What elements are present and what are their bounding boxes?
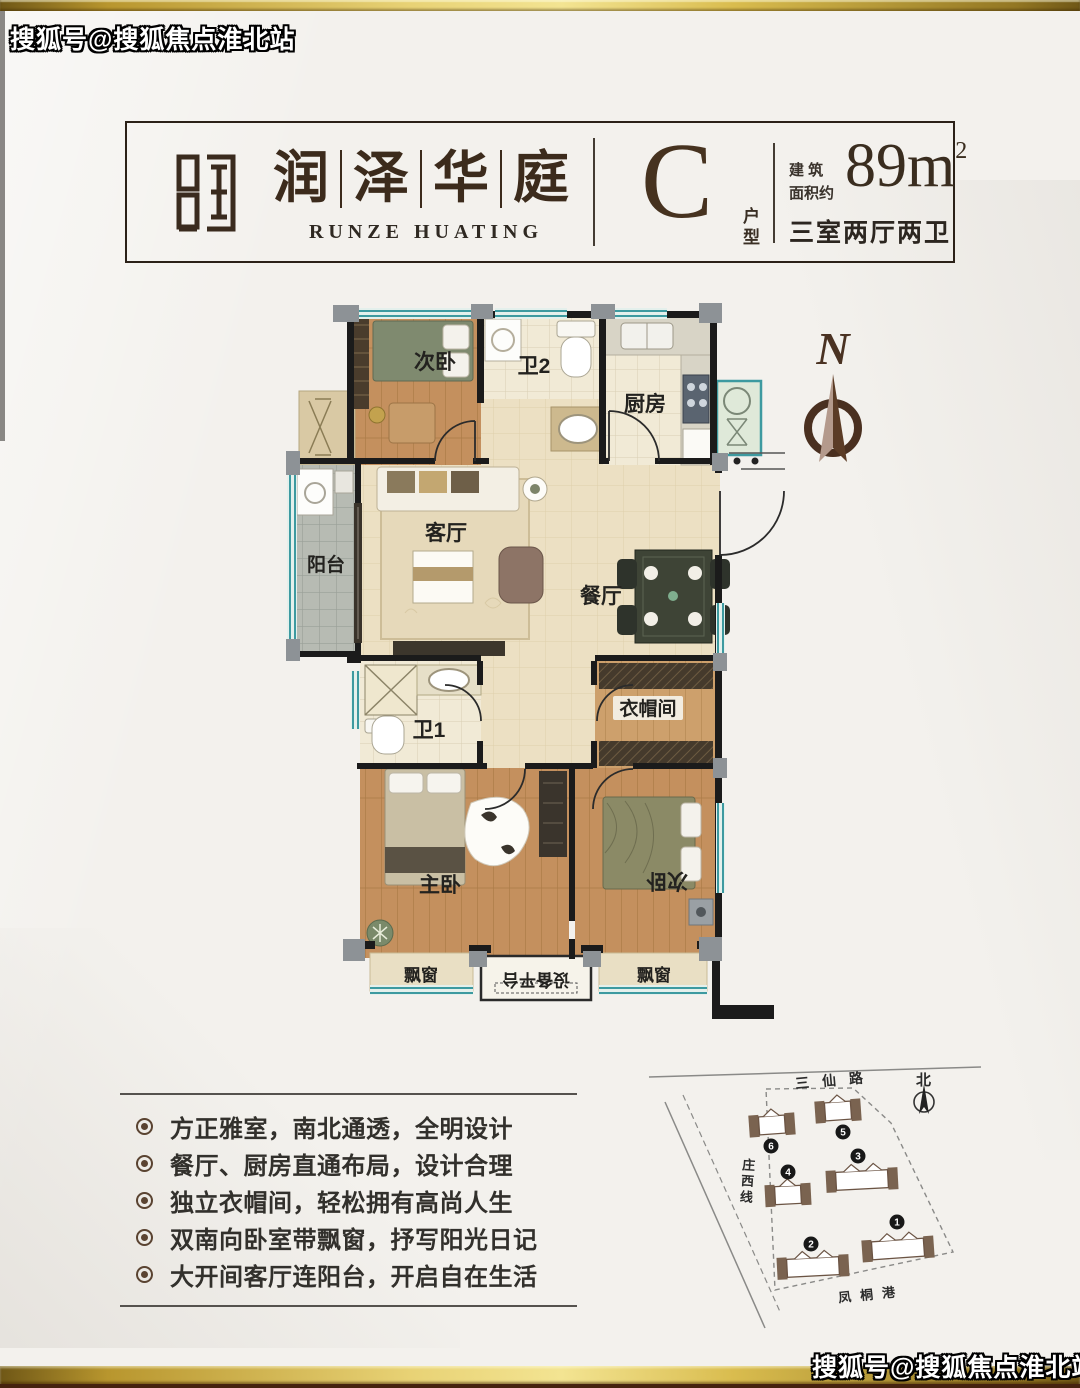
building-3-shape — [825, 1162, 898, 1193]
road-label-left: 庄西线 — [735, 1157, 757, 1206]
unit-suffix-char: 户 — [743, 207, 760, 227]
left-edge-shadow — [0, 11, 5, 441]
bath1-basin — [429, 669, 469, 691]
armchair — [499, 547, 543, 603]
fridge — [683, 429, 711, 463]
feature-text: 大开间客厅连阳台，开启自在生活 — [170, 1257, 538, 1292]
header-box: 润 泽 华 庭 RUNZE HUATING C 户 型 建 筑 面积约 89m2… — [125, 121, 955, 263]
label-bay-left: 飘窗 — [404, 965, 438, 985]
pillow — [681, 803, 701, 837]
unit-suffix: 户 型 — [743, 207, 760, 247]
compass: N — [793, 326, 873, 482]
label-balcony: 阳台 — [307, 553, 345, 576]
toilet-tank — [557, 321, 595, 337]
brand-title-en: RUNZE HUATING — [273, 221, 579, 244]
feature-text: 餐厅、厨房直通布局，设计合理 — [170, 1146, 513, 1181]
plate — [644, 566, 658, 580]
label-equipment: 设备平台 — [502, 970, 570, 990]
building-1-shape — [861, 1231, 935, 1263]
burner — [699, 383, 707, 391]
building-6-shape — [748, 1107, 796, 1137]
washer-balcony — [297, 469, 333, 515]
bullet-icon — [136, 1266, 153, 1283]
coffee-table-tray — [413, 567, 473, 581]
bullet-icon — [136, 1192, 153, 1209]
brand-separator — [420, 150, 422, 208]
compass-n-letter: N — [793, 326, 873, 372]
cloakroom-wardrobe-top — [599, 663, 713, 689]
gold-bar-top — [0, 0, 1080, 11]
area-label-line2: 面积约 — [789, 182, 834, 205]
label-cloakroom: 衣帽间 — [619, 697, 676, 720]
centerpiece — [668, 591, 678, 601]
sofa-cushion — [451, 471, 479, 493]
watermark-top-left: 搜狐号@搜狐焦点淮北站 — [10, 20, 295, 56]
neighbor-dot — [734, 458, 741, 465]
corridor-floor — [481, 661, 595, 768]
plate — [644, 612, 658, 626]
label-living: 客厅 — [425, 521, 467, 545]
feature-text: 双南向卧室带飘窗，抒写阳光日记 — [170, 1220, 538, 1255]
flyer-page: 搜狐号@搜狐焦点淮北站 润 泽 华 庭 RUNZE HUATING — [0, 0, 1080, 1388]
compass-arrow-icon — [795, 372, 871, 476]
label-kitchen: 厨房 — [624, 392, 666, 416]
area-superscript: 2 — [955, 138, 967, 164]
brand-char: 泽 — [353, 151, 409, 207]
label-master: 主卧 — [419, 874, 461, 897]
brand-char: 华 — [433, 151, 489, 207]
building-5-shape — [814, 1093, 862, 1123]
brand-char: 润 — [273, 151, 329, 207]
tv-console — [393, 641, 505, 656]
sofa-cushion — [419, 471, 447, 493]
toilet-bowl — [372, 716, 404, 754]
dining-chair — [617, 605, 637, 635]
feature-item: 双南向卧室带飘窗，抒写阳光日记 — [120, 1219, 577, 1256]
burner — [699, 399, 707, 407]
stove — [683, 375, 709, 423]
building-5-number: 5 — [840, 1128, 846, 1139]
brand-separator — [500, 150, 502, 208]
label-bedroom2-top: 次卧 — [414, 350, 456, 374]
rooms-summary: 三室两厅两卫 — [789, 213, 951, 249]
bullet-icon — [136, 1155, 153, 1172]
label-bay-right: 飘窗 — [637, 965, 671, 985]
floor-plan: 次卧 卫2 厨房 阳台 客厅 餐厅 卫1 衣帽间 主卧 次卧 飘窗 设备平台 飘… — [285, 303, 785, 1048]
building-2-shape — [776, 1249, 849, 1280]
ac-platform — [299, 391, 355, 465]
building-3-number: 3 — [855, 1152, 861, 1163]
feature-item: 方正雅室，南北通透，全明设计 — [120, 1108, 577, 1145]
watermark-bottom-right: 搜狐号@搜狐焦点淮北站 — [812, 1348, 1080, 1384]
unit-suffix-char: 型 — [743, 228, 760, 248]
header-divider — [773, 143, 775, 243]
bullet-icon — [136, 1118, 153, 1135]
feature-item: 独立衣帽间，轻松拥有高尚人生 — [120, 1182, 577, 1219]
dresser — [539, 771, 567, 857]
burner — [687, 383, 695, 391]
building-2-number: 2 — [808, 1240, 814, 1251]
bullet-icon — [136, 1229, 153, 1246]
building-4-number: 4 — [785, 1168, 791, 1179]
exterior-utility — [717, 381, 761, 455]
site-plan: 1 2 3 4 5 6 — [645, 1062, 985, 1330]
brand-seal-icon — [173, 151, 239, 235]
brand-char: 庭 — [513, 151, 569, 207]
feature-text: 方正雅室，南北通透，全明设计 — [170, 1109, 513, 1144]
label-dining: 餐厅 — [580, 584, 622, 608]
washing-machine — [485, 319, 521, 361]
balcony-cabinet — [335, 471, 353, 493]
area-label: 建 筑 面积约 — [789, 159, 834, 206]
nightstand-dot — [696, 907, 706, 917]
neighbor-dot — [752, 458, 759, 465]
plant — [530, 484, 540, 494]
area-label-line1: 建 筑 — [789, 159, 834, 182]
brand-title-cn: 润 泽 华 庭 — [273, 143, 569, 215]
label-bedroom2-bottom: 次卧 — [646, 869, 688, 893]
bottom-maroon-line — [0, 1384, 1080, 1388]
label-bath1: 卫1 — [413, 719, 446, 742]
sofa-cushion — [387, 471, 415, 493]
wash-basin — [559, 415, 597, 443]
pillow — [443, 325, 469, 349]
toilet-bowl — [561, 337, 591, 377]
pillow — [389, 773, 423, 793]
label-bath2: 卫2 — [518, 355, 551, 378]
bed-throw — [385, 847, 465, 873]
brand-separator — [340, 150, 342, 208]
feature-text: 独立衣帽间，轻松拥有高尚人生 — [170, 1183, 513, 1218]
plate — [688, 566, 702, 580]
building-1-number: 1 — [894, 1218, 900, 1229]
unit-letter: C — [641, 125, 713, 238]
features-list: 方正雅室，南北通透，全明设计 餐厅、厨房直通布局，设计合理 独立衣帽间，轻松拥有… — [120, 1093, 577, 1307]
area-value: 89m2 — [845, 135, 967, 197]
feature-item: 餐厅、厨房直通布局，设计合理 — [120, 1145, 577, 1182]
burner — [687, 399, 695, 407]
cloakroom-wardrobe-bottom — [599, 741, 713, 766]
header-divider — [593, 138, 595, 246]
pillow — [427, 773, 461, 793]
feature-item: 大开间客厅连阳台，开启自在生活 — [120, 1256, 577, 1293]
north-label: 北 — [916, 1069, 931, 1090]
building-6-number: 6 — [768, 1142, 774, 1153]
building-4-shape — [764, 1178, 811, 1207]
stool — [369, 407, 385, 423]
plate — [688, 612, 702, 626]
desk — [389, 403, 435, 443]
